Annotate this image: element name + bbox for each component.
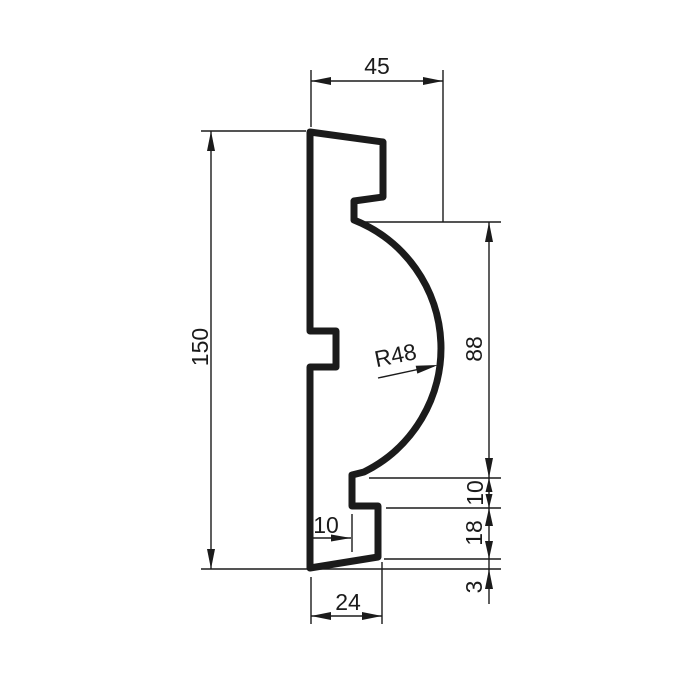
arrowhead-right-icon: [362, 612, 382, 620]
arrowhead-down-icon: [207, 549, 215, 569]
dim-bottom-depth-label: 24: [335, 589, 361, 615]
dim-lower-step-height-label: 18: [461, 520, 487, 546]
dim-overall-height-label: 150: [187, 328, 213, 366]
drawing-canvas: 45 150 88 10: [0, 0, 686, 686]
arrowhead-left-icon: [311, 77, 331, 85]
arrowhead-right-icon: [423, 77, 443, 85]
dimension-bottom-bevel: 3: [461, 559, 493, 604]
dim-curve-height-label: 88: [461, 336, 487, 362]
arrowhead-up-icon: [207, 131, 215, 151]
arrowhead-up-icon: [485, 222, 493, 242]
dim-bottom-inset-label: 10: [313, 512, 339, 538]
technical-drawing: 45 150 88 10: [0, 0, 686, 686]
dimension-bottom-depth: 24: [311, 562, 382, 624]
dim-recess-height-label: 10: [462, 480, 488, 506]
dimension-overall-height: 150: [187, 131, 306, 569]
arrowhead-leader-icon: [416, 365, 438, 374]
radius-callout: R48: [372, 338, 438, 378]
dimension-bottom-inset: 10: [313, 512, 352, 552]
arrowhead-down-icon: [485, 458, 493, 478]
dimension-lower-step-height: 18: [384, 508, 501, 559]
arrowhead-left-icon: [311, 612, 331, 620]
dim-top-width-label: 45: [364, 53, 390, 79]
dim-bottom-bevel-label: 3: [461, 581, 487, 594]
radius-label: R48: [372, 338, 419, 372]
dimension-recess-height: 10: [386, 478, 501, 508]
